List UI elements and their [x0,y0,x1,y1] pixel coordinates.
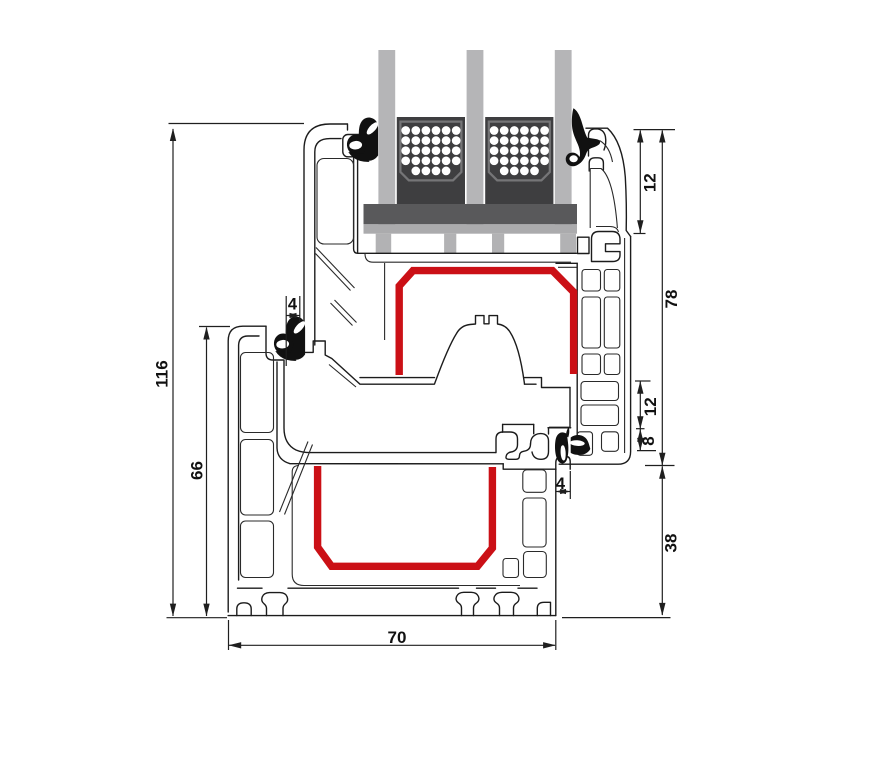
svg-text:4: 4 [556,475,566,493]
svg-text:12: 12 [641,397,660,416]
svg-text:4: 4 [288,296,298,314]
svg-text:116: 116 [153,360,172,387]
svg-text:38: 38 [662,534,681,553]
svg-text:78: 78 [662,290,681,309]
svg-text:70: 70 [388,628,407,647]
svg-text:12: 12 [641,173,660,192]
svg-text:66: 66 [188,461,207,480]
svg-text:8: 8 [639,436,658,445]
